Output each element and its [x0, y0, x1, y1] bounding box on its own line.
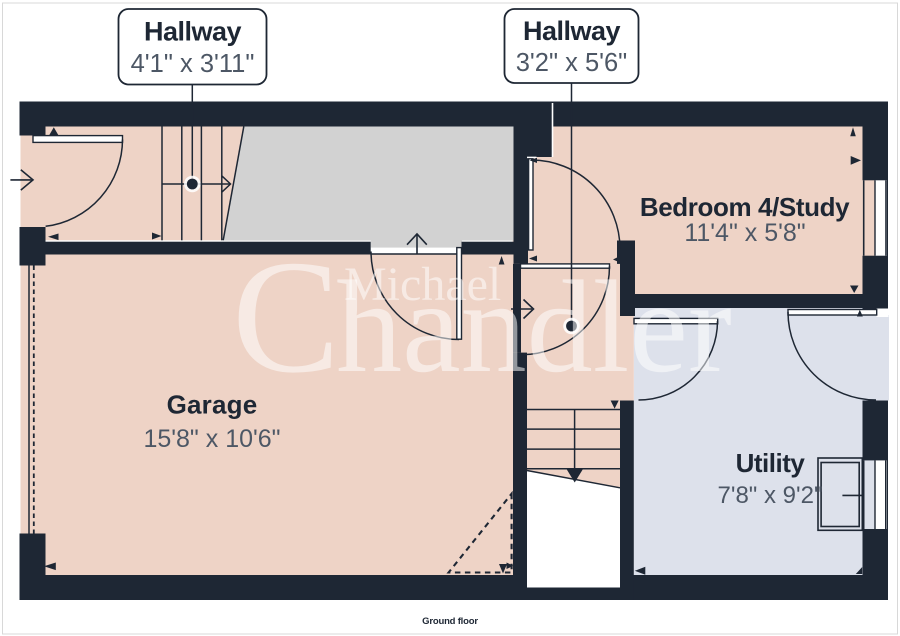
svg-text:Hallway: Hallway — [523, 16, 621, 46]
svg-text:3'2" x 5'6": 3'2" x 5'6" — [516, 49, 628, 77]
svg-text:4'1" x 3'11": 4'1" x 3'11" — [131, 50, 255, 78]
svg-text:11'4" x 5'8": 11'4" x 5'8" — [684, 219, 805, 247]
svg-text:15'8" x 10'6": 15'8" x 10'6" — [143, 425, 280, 453]
svg-text:7'8" x 9'2": 7'8" x 9'2" — [718, 482, 823, 509]
svg-text:Chandler: Chandler — [232, 228, 732, 407]
svg-text:Bedroom 4/Study: Bedroom 4/Study — [640, 192, 850, 222]
svg-text:Utility: Utility — [736, 448, 806, 478]
svg-text:Hallway: Hallway — [144, 17, 242, 47]
svg-text:Ground floor: Ground floor — [422, 616, 478, 627]
